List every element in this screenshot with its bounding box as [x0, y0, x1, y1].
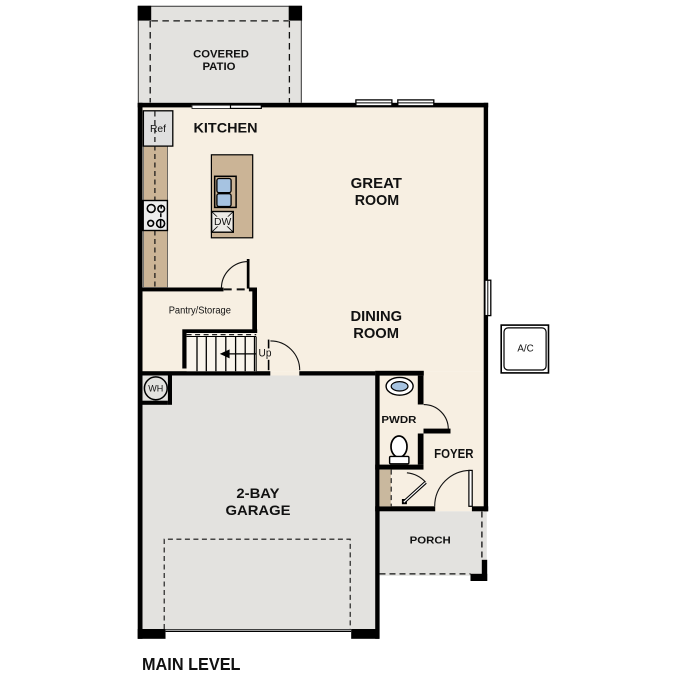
svg-text:Pantry/Storage: Pantry/Storage [169, 305, 232, 316]
svg-text:PWDR: PWDR [381, 415, 417, 426]
svg-text:Up: Up [259, 347, 272, 359]
svg-text:Ref: Ref [150, 124, 166, 135]
svg-text:2-BAY: 2-BAY [236, 485, 280, 501]
svg-text:GREAT: GREAT [351, 175, 402, 192]
svg-text:PORCH: PORCH [410, 535, 451, 546]
svg-text:MAIN LEVEL: MAIN LEVEL [142, 654, 241, 674]
svg-text:KITCHEN: KITCHEN [194, 121, 258, 137]
svg-text:PATIO: PATIO [202, 61, 235, 73]
svg-text:A/C: A/C [517, 343, 533, 354]
svg-text:ROOM: ROOM [355, 192, 399, 209]
svg-text:ROOM: ROOM [353, 326, 399, 342]
svg-text:COVERED: COVERED [193, 49, 249, 61]
svg-text:DW: DW [214, 217, 232, 228]
svg-text:GARAGE: GARAGE [226, 502, 291, 518]
svg-text:WH: WH [148, 384, 163, 394]
svg-text:FOYER: FOYER [434, 446, 474, 461]
svg-text:DINING: DINING [351, 309, 403, 325]
